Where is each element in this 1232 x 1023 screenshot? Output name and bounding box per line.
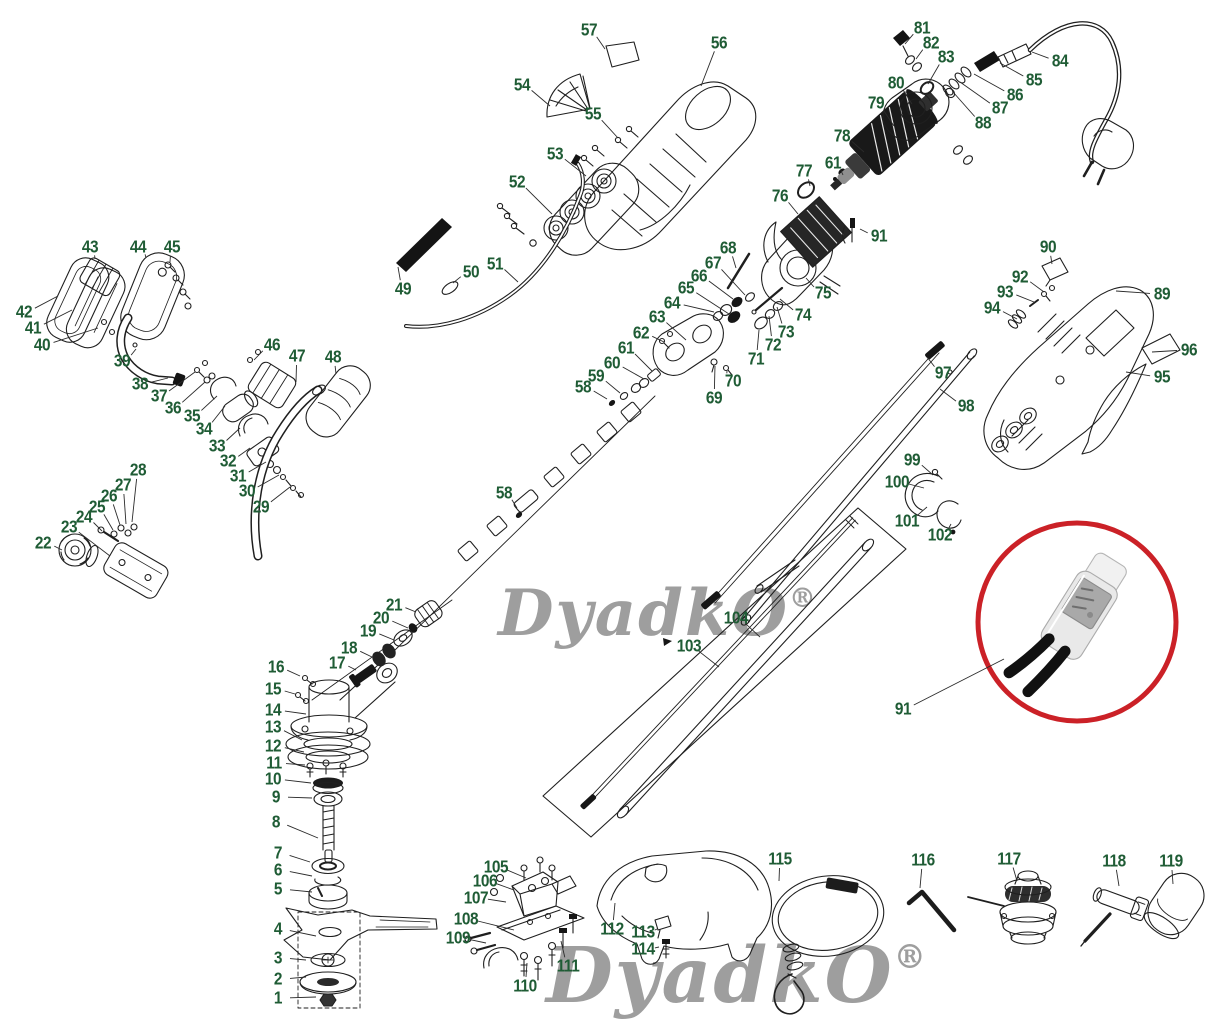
part-label-82: 82: [923, 33, 939, 54]
part-label-58: 58: [496, 483, 512, 504]
part-label-109: 109: [446, 928, 470, 949]
part-label-99: 99: [904, 450, 920, 471]
part-label-112: 112: [600, 919, 624, 940]
part-label-79: 79: [868, 93, 884, 114]
part-label-57: 57: [581, 20, 597, 41]
part-label-61: 61: [618, 338, 634, 359]
part-label-44: 44: [130, 237, 146, 258]
part-label-88: 88: [975, 113, 991, 134]
part-label-119: 119: [1159, 851, 1183, 872]
part-label-111: 111: [557, 956, 580, 977]
part-label-46: 46: [264, 335, 280, 356]
part-label-91: 91: [871, 226, 887, 247]
part-label-70: 70: [725, 371, 741, 392]
part-label-63: 63: [649, 307, 665, 328]
part-label-5: 5: [274, 879, 282, 900]
part-label-80: 80: [888, 73, 904, 94]
part-label-45: 45: [164, 237, 180, 258]
part-label-42: 42: [16, 302, 32, 323]
part-label-54: 54: [514, 75, 530, 96]
part-label-49: 49: [395, 279, 411, 300]
part-label-110: 110: [513, 976, 537, 997]
part-label-59: 59: [588, 366, 604, 387]
part-label-18: 18: [341, 638, 357, 659]
part-label-21: 21: [386, 595, 402, 616]
part-label-56: 56: [711, 33, 727, 54]
part-label-7: 7: [274, 843, 282, 864]
part-label-95: 95: [1154, 367, 1170, 388]
part-label-92: 92: [1012, 267, 1028, 288]
part-label-76: 76: [772, 186, 788, 207]
part-label-69: 69: [706, 388, 722, 409]
part-label-107: 107: [464, 888, 488, 909]
part-label-117: 117: [997, 849, 1021, 870]
part-label-73: 73: [778, 322, 794, 343]
part-label-61: 61: [825, 153, 841, 174]
part-label-71: 71: [748, 349, 764, 370]
part-label-91: 91: [895, 699, 911, 720]
part-label-94: 94: [984, 298, 1000, 319]
part-label-43: 43: [82, 237, 98, 258]
part-label-115: 115: [768, 849, 792, 870]
part-label-37: 37: [151, 386, 167, 407]
part-label-53: 53: [547, 144, 563, 165]
parts-diagram-page: DyadkO® DyadkO®: [0, 0, 1232, 1023]
part-label-116: 116: [911, 850, 935, 871]
part-label-102: 102: [928, 525, 952, 546]
part-label-114: 114: [631, 939, 655, 960]
part-label-67: 67: [705, 253, 721, 274]
part-label-86: 86: [1007, 85, 1023, 106]
part-number-layer: 1234567891011121314151617181920212223242…: [0, 0, 1232, 1023]
part-label-104: 104: [724, 608, 748, 629]
part-label-3: 3: [274, 948, 282, 969]
part-label-90: 90: [1040, 237, 1056, 258]
part-label-28: 28: [130, 460, 146, 481]
part-label-1: 1: [274, 988, 282, 1009]
part-label-55: 55: [585, 104, 601, 125]
part-label-15: 15: [265, 679, 281, 700]
part-label-62: 62: [633, 323, 649, 344]
part-label-22: 22: [35, 533, 51, 554]
part-label-96: 96: [1181, 340, 1197, 361]
part-label-50: 50: [463, 262, 479, 283]
part-label-35: 35: [184, 406, 200, 427]
part-label-29: 29: [253, 497, 269, 518]
part-label-75: 75: [815, 283, 831, 304]
part-label-47: 47: [289, 346, 305, 367]
part-label-12: 12: [265, 736, 281, 757]
part-label-108: 108: [454, 909, 478, 930]
part-label-103: 103: [677, 636, 701, 657]
part-label-27: 27: [115, 475, 131, 496]
part-label-38: 38: [132, 374, 148, 395]
part-label-51: 51: [487, 254, 503, 275]
part-label-16: 16: [268, 657, 284, 678]
part-label-39: 39: [114, 351, 130, 372]
part-label-2: 2: [274, 969, 282, 990]
part-label-4: 4: [274, 919, 282, 940]
part-label-98: 98: [958, 396, 974, 417]
part-label-83: 83: [938, 47, 954, 68]
part-label-87: 87: [992, 98, 1008, 119]
part-label-68: 68: [720, 238, 736, 259]
part-label-101: 101: [895, 511, 919, 532]
part-label-74: 74: [795, 305, 811, 326]
part-label-14: 14: [265, 700, 281, 721]
part-label-89: 89: [1154, 284, 1170, 305]
part-label-84: 84: [1052, 51, 1068, 72]
part-label-48: 48: [325, 347, 341, 368]
part-label-23: 23: [61, 517, 77, 538]
part-label-36: 36: [165, 398, 181, 419]
part-label-97: 97: [935, 363, 951, 384]
part-label-100: 100: [885, 472, 909, 493]
part-label-52: 52: [509, 172, 525, 193]
part-label-118: 118: [1102, 851, 1126, 872]
part-label-77: 77: [796, 161, 812, 182]
part-label-9: 9: [272, 787, 280, 808]
part-label-85: 85: [1026, 70, 1042, 91]
part-label-8: 8: [272, 812, 280, 833]
part-label-78: 78: [834, 126, 850, 147]
